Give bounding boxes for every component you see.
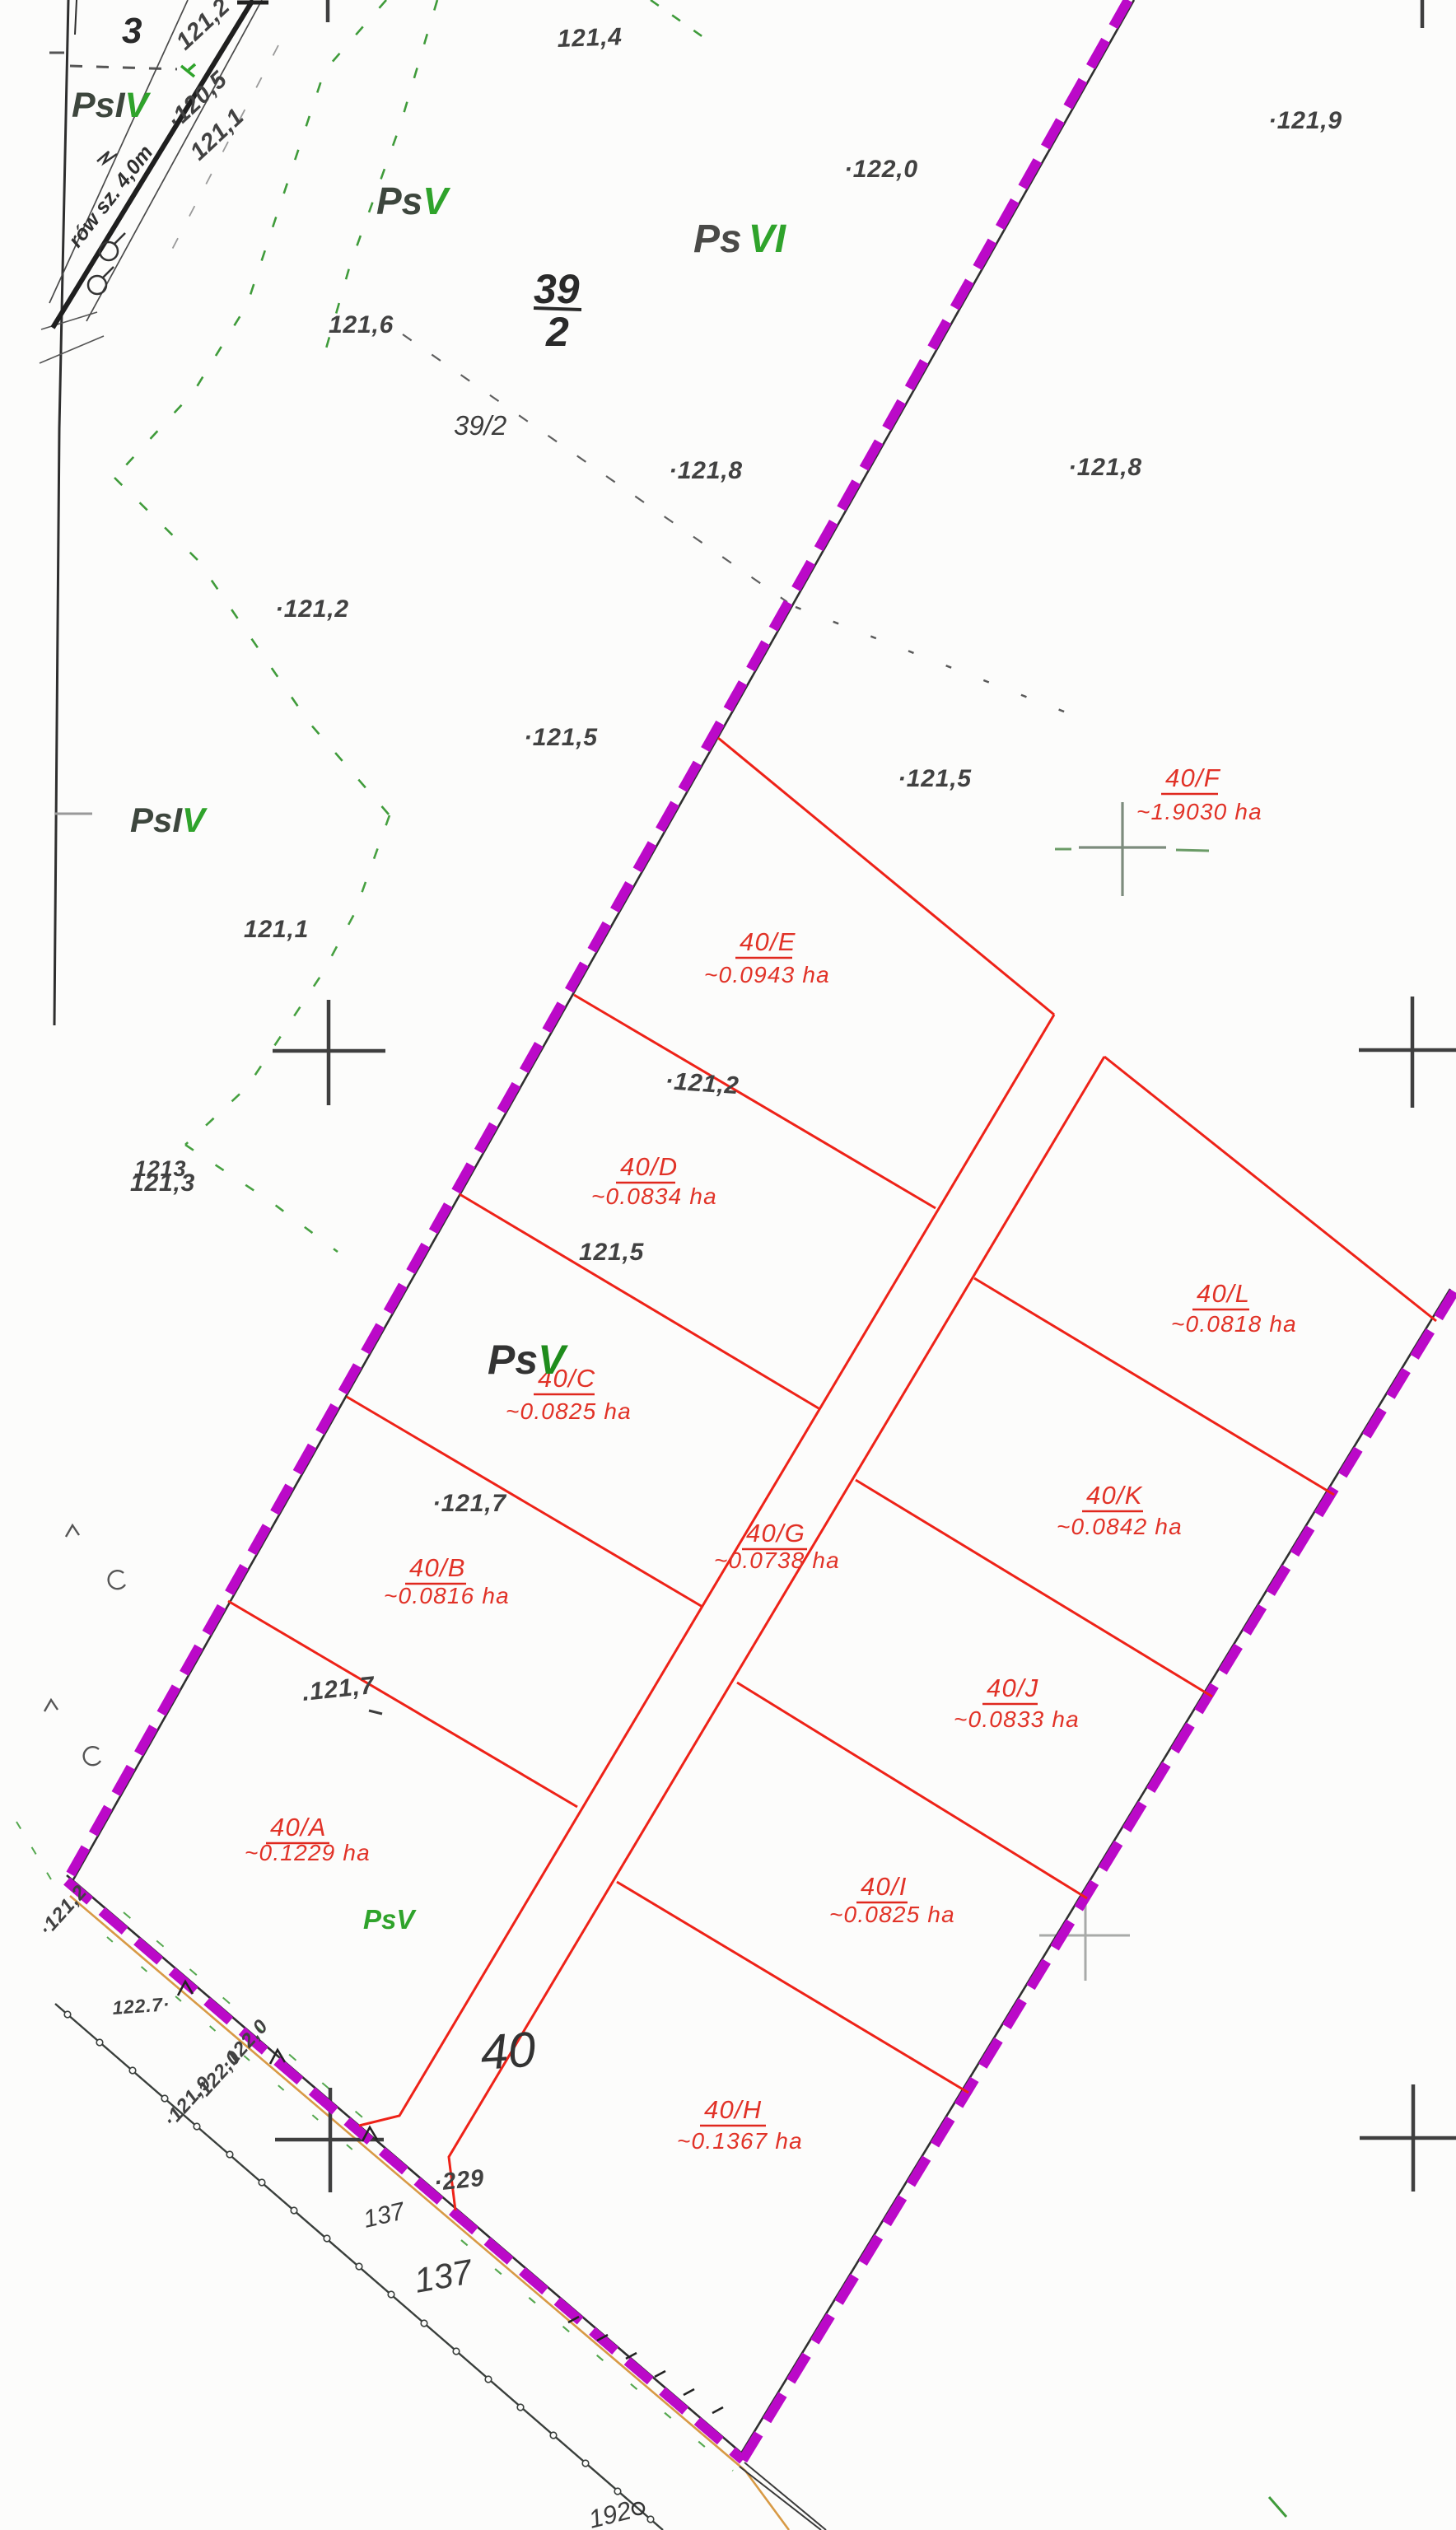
svg-text:·121,5: ·121,5 <box>898 765 972 792</box>
svg-text:39: 39 <box>534 266 580 312</box>
svg-text:122.7·: 122.7· <box>112 1993 171 2019</box>
svg-text:40/A: 40/A <box>270 1813 327 1841</box>
svg-text:PsVI: PsVI <box>693 217 787 261</box>
svg-text:2: 2 <box>545 309 569 355</box>
svg-text:~0.1229 ha: ~0.1229 ha <box>245 1840 371 1865</box>
svg-text:PsIV: PsIV <box>130 801 208 839</box>
svg-text:40/D: 40/D <box>620 1152 678 1181</box>
svg-text:121,3: 121,3 <box>130 1169 195 1197</box>
svg-text:~0.0943 ha: ~0.0943 ha <box>704 962 830 987</box>
svg-text:~0.0818 ha: ~0.0818 ha <box>1171 1311 1297 1337</box>
svg-text:·121,2: ·121,2 <box>275 595 349 623</box>
svg-text:·229: ·229 <box>432 2165 485 2196</box>
svg-text:121,1: 121,1 <box>244 916 309 943</box>
svg-text:~0.0816 ha: ~0.0816 ha <box>384 1583 510 1608</box>
svg-text:~0.0825 ha: ~0.0825 ha <box>506 1398 632 1424</box>
svg-text:121,5: 121,5 <box>579 1239 645 1266</box>
svg-text:3: 3 <box>122 11 142 51</box>
svg-text:40/B: 40/B <box>409 1553 466 1582</box>
svg-text:·121,8: ·121,8 <box>1068 454 1142 481</box>
svg-text:·121,8: ·121,8 <box>669 457 743 484</box>
svg-text:~0.0842 ha: ~0.0842 ha <box>1057 1514 1183 1539</box>
svg-text:·121,2: ·121,2 <box>665 1067 740 1099</box>
svg-text:40/L: 40/L <box>1197 1279 1250 1308</box>
svg-text:39/2: 39/2 <box>454 410 506 441</box>
svg-text:40/I: 40/I <box>861 1872 908 1901</box>
svg-text:40: 40 <box>478 2021 537 2080</box>
svg-text:~0.0825 ha: ~0.0825 ha <box>829 1902 955 1927</box>
svg-text:~0.0833 ha: ~0.0833 ha <box>954 1706 1080 1732</box>
svg-text:~0.1367 ha: ~0.1367 ha <box>677 2128 803 2154</box>
svg-text:PsIV: PsIV <box>72 86 152 125</box>
svg-text:PsV: PsV <box>488 1337 568 1383</box>
svg-text:·122,0: ·122,0 <box>844 156 918 183</box>
svg-text:~0.0834 ha: ~0.0834 ha <box>591 1183 717 1209</box>
svg-text:121,4: 121,4 <box>557 23 623 53</box>
svg-text:121,6: 121,6 <box>329 311 394 338</box>
svg-text:40/J: 40/J <box>987 1673 1038 1702</box>
svg-text:40/E: 40/E <box>740 927 796 956</box>
svg-text:40/G: 40/G <box>746 1519 805 1547</box>
svg-text:40/H: 40/H <box>704 2095 762 2124</box>
svg-text:~1.9030 ha: ~1.9030 ha <box>1136 799 1262 824</box>
svg-text:PsV: PsV <box>376 180 450 222</box>
svg-text:40/F: 40/F <box>1165 763 1221 792</box>
svg-text:·121,9: ·121,9 <box>1268 107 1342 134</box>
svg-text:·121,7: ·121,7 <box>432 1490 506 1517</box>
svg-text:~0.0738 ha: ~0.0738 ha <box>714 1547 840 1573</box>
svg-text:·121,5: ·121,5 <box>524 724 598 751</box>
svg-text:40/K: 40/K <box>1086 1481 1143 1510</box>
svg-text:PsV: PsV <box>363 1904 417 1935</box>
